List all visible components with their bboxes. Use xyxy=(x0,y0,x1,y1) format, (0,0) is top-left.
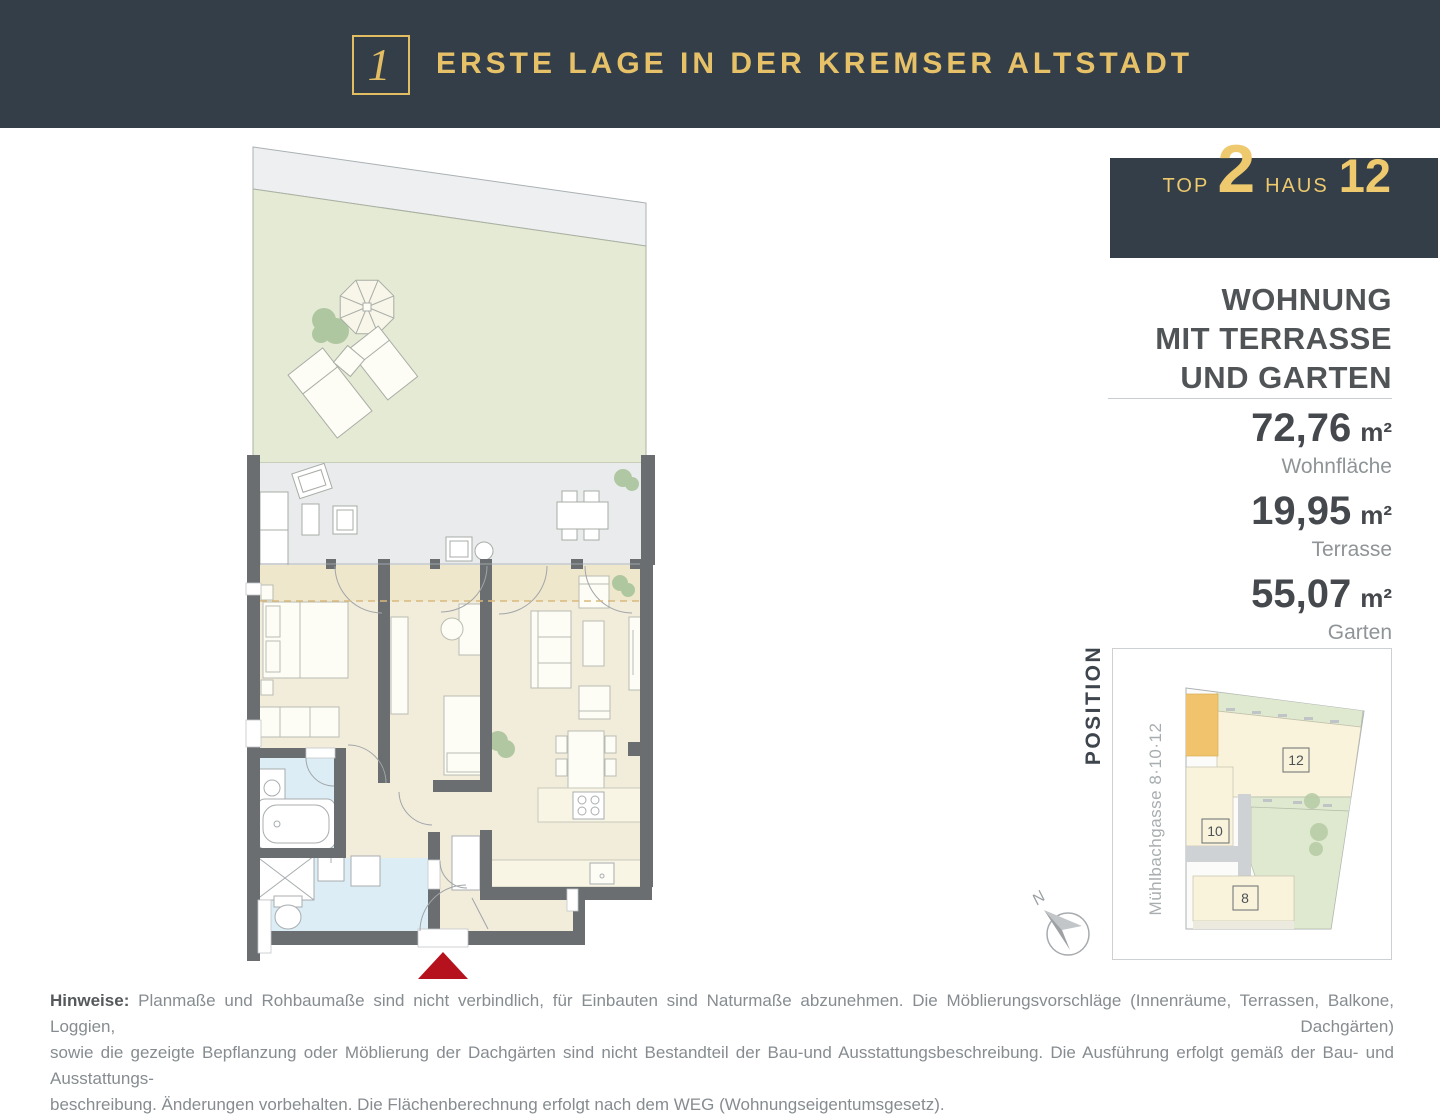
area-unit: m² xyxy=(1360,583,1392,613)
top-label: TOP xyxy=(1163,175,1210,198)
area-terrasse: 19,95m² Terrasse xyxy=(1032,490,1392,562)
divider-line xyxy=(1108,398,1392,399)
compass-n-label: N xyxy=(1029,888,1049,909)
site-label-10: 10 xyxy=(1207,823,1223,839)
compass-icon: N xyxy=(1026,886,1112,972)
notes-line-3: beschreibung. Änderungen vorbehalten. Di… xyxy=(50,1092,1394,1118)
notes-bold: Hinweise: xyxy=(50,991,129,1010)
site-highlight-unit xyxy=(1184,694,1218,756)
area-wohnflaeche: 72,76m² Wohnfläche xyxy=(1032,407,1392,479)
area-value: 72,76 xyxy=(1251,406,1351,450)
floorplan-drawing xyxy=(228,135,700,1000)
site-label-8: 8 xyxy=(1241,890,1249,906)
street-label: Mühlbachgasse 8·10·12 xyxy=(1146,723,1165,916)
page-title: ERSTE LAGE IN DER KREMSER ALTSTADT xyxy=(436,0,1193,128)
headline-line: UND GARTEN xyxy=(972,358,1392,397)
haus-number: 12 xyxy=(1339,152,1391,199)
brand-logo: 1 xyxy=(352,35,410,95)
site-path xyxy=(1238,794,1251,876)
area-figures: 72,76m² Wohnfläche 19,95m² Terrasse 55,0… xyxy=(1032,407,1392,656)
haus-label: HAUS xyxy=(1265,175,1329,198)
headline-line: WOHNUNG xyxy=(972,280,1392,319)
unit-headline: WOHNUNG MIT TERRASSE UND GARTEN xyxy=(972,280,1392,397)
area-label: Garten xyxy=(1032,620,1392,645)
area-value: 55,07 xyxy=(1251,572,1351,616)
area-label: Wohnfläche xyxy=(1032,454,1392,479)
bedroom-furniture xyxy=(251,585,348,737)
legal-notes: Hinweise: Planmaße und Rohbaumaße sind n… xyxy=(50,988,1394,1118)
notes-line-2: sowie die gezeigte Bepflanzung oder Möbl… xyxy=(50,1040,1394,1092)
site-path xyxy=(1186,846,1246,862)
parasol-icon xyxy=(340,280,394,334)
top-number: 2 xyxy=(1217,135,1255,203)
area-value: 19,95 xyxy=(1251,489,1351,533)
site-label-12: 12 xyxy=(1288,752,1304,768)
area-label: Terrasse xyxy=(1032,537,1392,562)
entrance-marker-icon xyxy=(418,952,468,979)
header-bar: 1 ERSTE LAGE IN DER KREMSER ALTSTADT xyxy=(0,0,1440,128)
site-plan: 12 10 8 Mühlbachgasse 8·10·12 xyxy=(1112,648,1392,960)
position-label: POSITION xyxy=(1082,645,1106,765)
area-unit: m² xyxy=(1360,417,1392,447)
unit-id-box: TOP 2 HAUS 12 xyxy=(1110,158,1438,258)
area-unit: m² xyxy=(1360,500,1392,530)
logo-one-glyph: 1 xyxy=(368,42,391,88)
area-garten: 55,07m² Garten xyxy=(1032,573,1392,645)
notes-line-1: Hinweise: Planmaße und Rohbaumaße sind n… xyxy=(50,988,1394,1040)
site-strip xyxy=(1193,921,1294,929)
headline-line: MIT TERRASSE xyxy=(972,319,1392,358)
